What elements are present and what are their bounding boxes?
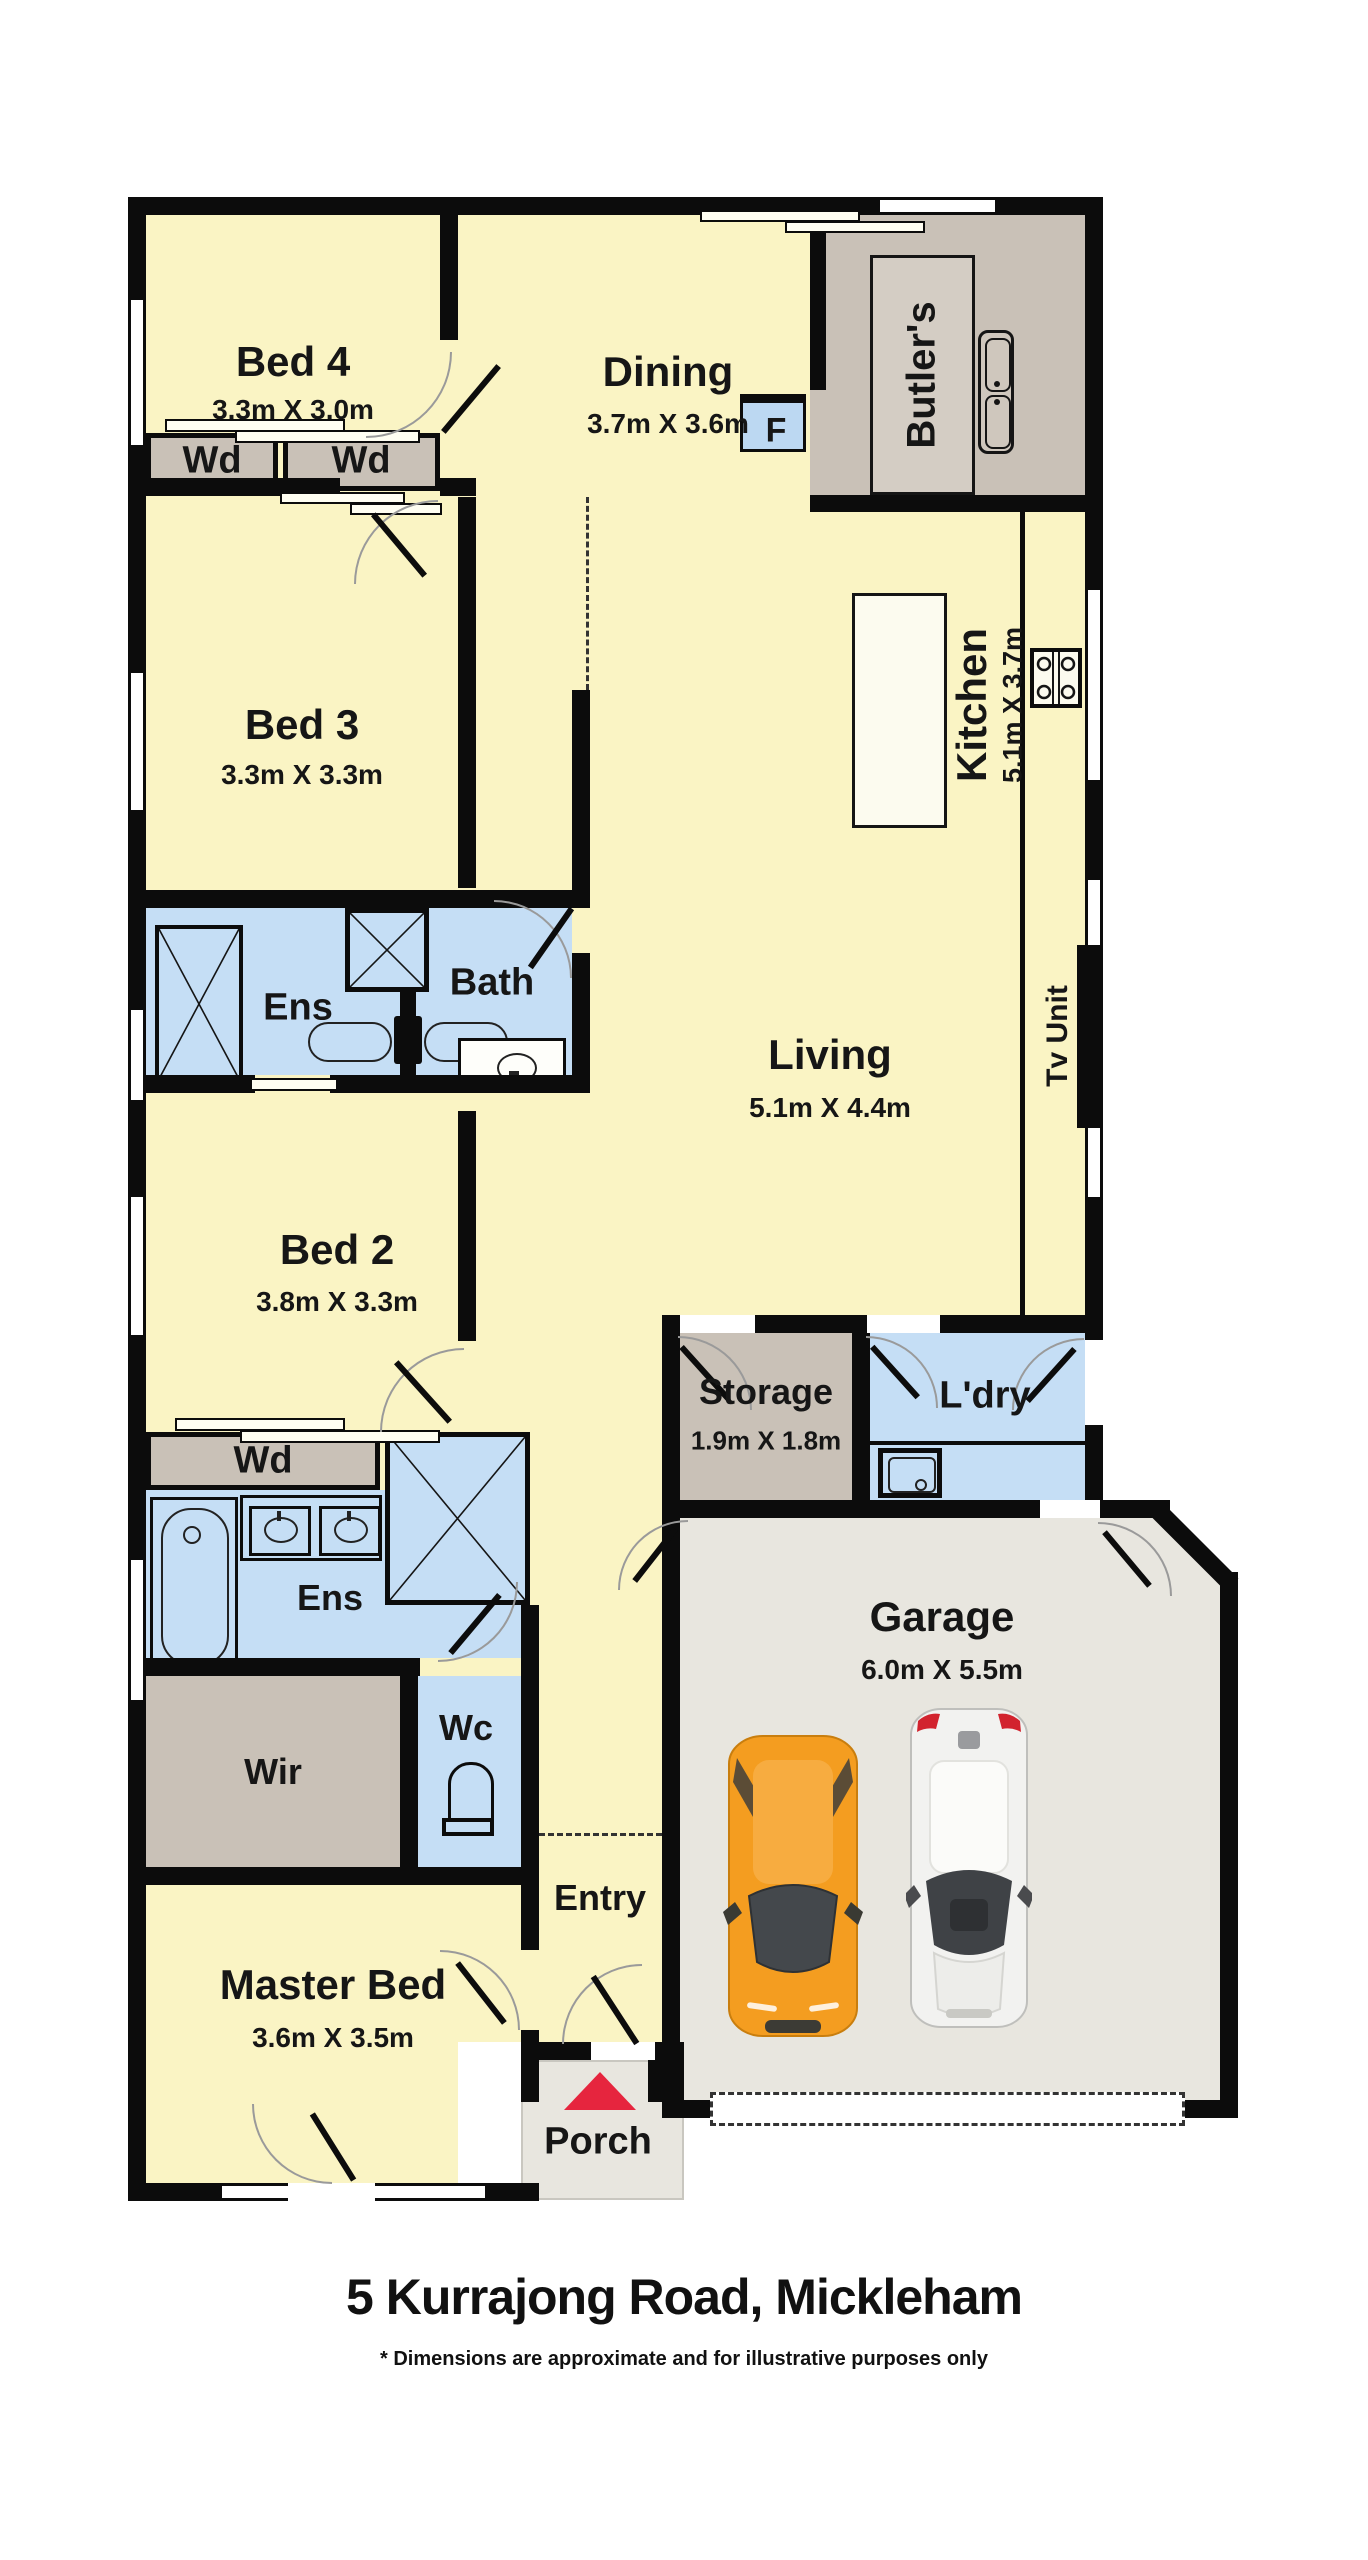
window-master-b (375, 2183, 485, 2201)
ens-upper-label: Ens (263, 987, 333, 1030)
bed4-label: Bed 4 (236, 338, 350, 386)
floorplan-page: F (0, 0, 1368, 2560)
wall-wir-wc (400, 1676, 418, 1867)
window-ens-upper (128, 1010, 146, 1100)
window-top-dining (880, 197, 995, 215)
window-bed4 (128, 300, 146, 445)
tv-unit-label: Tv Unit (1041, 985, 1075, 1087)
laundry-label: L'dry (939, 1375, 1030, 1418)
shower-bath (345, 908, 429, 992)
master-dims: 3.6m X 3.5m (252, 2022, 414, 2054)
entry-label: Entry (554, 1877, 646, 1919)
wall-bath-bottom-a (146, 1075, 255, 1093)
fridge-label: F (766, 412, 787, 451)
master-label: Master Bed (220, 1961, 446, 2009)
porch-arrow-icon (564, 2072, 636, 2110)
wall-living-bottom-b (755, 1315, 867, 1333)
living-dims: 5.1m X 4.4m (749, 1092, 911, 1124)
fridge: F (740, 394, 806, 452)
wall-bed3-top-b (440, 478, 476, 496)
wir-label: Wir (244, 1751, 302, 1793)
shower-ens-lower (385, 1432, 530, 1605)
window-kitchen (1085, 590, 1103, 780)
ens-lower-vanity (240, 1495, 382, 1561)
wall-bed3-right (458, 497, 476, 888)
disclaimer-text: * Dimensions are approximate and for ill… (0, 2348, 1368, 2371)
wall-butlers-bottom (810, 495, 1085, 512)
slider-ens-upper-door (250, 1078, 338, 1091)
door-opening-master-ext (288, 2183, 375, 2201)
door-opening-master-door (521, 1950, 539, 2030)
kitchen-dims: 5.1m X 3.7m (998, 627, 1029, 783)
kitchen-label: Kitchen (948, 628, 996, 782)
bed3-label: Bed 3 (245, 701, 359, 749)
bath-label: Bath (450, 962, 534, 1005)
wall-living-bottom-c (940, 1315, 1103, 1333)
wall-garage-left (662, 1315, 680, 2118)
bed2-label: Bed 2 (280, 1226, 394, 1274)
garage-label: Garage (870, 1593, 1015, 1641)
dining-dims: 3.7m X 3.6m (587, 408, 749, 440)
wall-butlers-left (810, 215, 826, 390)
window-bed3 (128, 673, 146, 810)
car-white (906, 1703, 1032, 2033)
wc-toilet (442, 1762, 494, 1848)
garage-dims: 6.0m X 5.5m (861, 1654, 1023, 1686)
storage-label: Storage (699, 1371, 833, 1413)
car-orange (723, 1728, 863, 2043)
wardrobe-label-3: Wd (233, 1440, 292, 1483)
butlers-sink (978, 330, 1014, 454)
wall-bath-right (572, 953, 590, 1093)
laundry-bench-line (870, 1441, 1085, 1445)
wc-label: Wc (439, 1707, 493, 1749)
wall-bed2-right (458, 1111, 476, 1341)
door-opening-laundry-ext (1085, 1340, 1103, 1425)
wall-bath-bottom-b (330, 1075, 590, 1093)
ens-lower-label: Ens (297, 1577, 363, 1619)
storage-dims: 1.9m X 1.8m (691, 1426, 841, 1457)
wall-bed4-right (440, 215, 458, 340)
wall-hall-dining (572, 690, 590, 890)
porch-label: Porch (544, 2121, 652, 2164)
bed2-dims: 3.8m X 3.3m (256, 1286, 418, 1318)
tv-unit-bar (1077, 945, 1103, 1128)
page-title: 5 Kurrajong Road, Mickleham (0, 2268, 1368, 2326)
wardrobe-label-2: Wd (331, 440, 390, 483)
window-living-upper (1085, 880, 1103, 945)
wardrobe-label-1: Wd (182, 440, 241, 483)
wall-ens-lower-bottom (146, 1658, 420, 1676)
slider-dining-top-b (785, 221, 925, 233)
dash-hall-dining (586, 497, 589, 690)
wall-garage-top-a (662, 1500, 1040, 1518)
wall-front-a (521, 2042, 591, 2060)
garage-door (710, 2092, 1185, 2126)
dash-hall-entry (539, 1833, 662, 1836)
bed3-dims: 3.3m X 3.3m (221, 759, 383, 791)
wall-garage-right (1220, 1572, 1238, 2118)
butlers-label: Butler's (900, 301, 945, 448)
porch-stub-left (521, 2060, 539, 2102)
kitchen-island (852, 593, 947, 828)
shower-ens-upper (155, 925, 243, 1083)
window-ens-lower (128, 1560, 146, 1700)
dining-label: Dining (603, 348, 734, 396)
wall-right (1085, 197, 1103, 1500)
wall-master-top (128, 1867, 539, 1885)
laundry-tub (878, 1448, 942, 1498)
stove-cooktop (1030, 648, 1082, 708)
window-master-a (222, 2183, 288, 2201)
window-living-lower (1085, 1128, 1103, 1197)
bathtub (150, 1497, 238, 1675)
wall-ens-bath-divider (400, 990, 416, 1080)
window-bed2 (128, 1197, 146, 1335)
living-label: Living (768, 1031, 892, 1079)
wall-living-bottom-a (662, 1315, 676, 1333)
bed4-dims: 3.3m X 3.0m (212, 394, 374, 426)
